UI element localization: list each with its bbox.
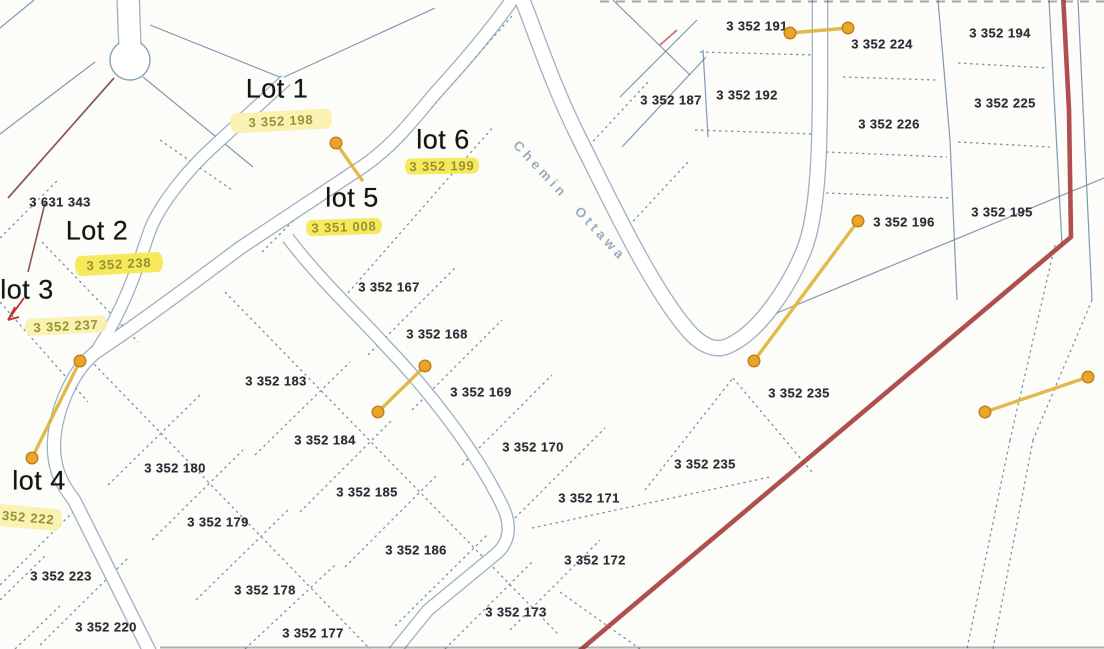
lot-label: lot 5 — [325, 183, 379, 214]
lot-label: lot 6 — [416, 125, 470, 156]
highlighted-parcel-number: 3 352 199 — [409, 158, 474, 174]
parcel-highlight: 3 352 237 — [25, 314, 108, 335]
parcel-label: 3 352 185 — [336, 485, 397, 500]
parcel-label: 3 352 225 — [974, 96, 1035, 111]
map-lines-layer — [0, 0, 1104, 649]
parcel-label: 3 352 191 — [726, 19, 787, 34]
parcel-label: 3 352 178 — [234, 583, 295, 598]
parcel-label: 3 352 170 — [502, 440, 563, 455]
parcel-label: 3 352 173 — [485, 605, 546, 620]
highlighted-parcel-number: 3 352 222 — [0, 507, 55, 528]
parcel-label: 3 352 180 — [144, 461, 205, 476]
highlighted-parcel-number: 3 352 198 — [248, 112, 314, 130]
parcel-label: 3 352 226 — [858, 117, 919, 132]
cadastral-map: 3 352 1983 352 1993 351 0083 352 2383 35… — [0, 0, 1104, 649]
parcel-label: 3 352 171 — [558, 491, 619, 506]
lot-label: Lot 1 — [246, 74, 309, 105]
parcel-label: 3 352 223 — [30, 569, 91, 584]
parcel-label: 3 352 220 — [75, 620, 136, 635]
parcel-label: 3 352 169 — [450, 385, 511, 400]
highlighted-parcel-number: 3 352 237 — [33, 316, 99, 334]
lot-label: lot 3 — [0, 275, 54, 306]
parcel-label: 3 352 224 — [851, 37, 912, 52]
parcel-label: 3 352 167 — [358, 280, 419, 295]
highlighted-parcel-number: 3 352 238 — [86, 255, 152, 273]
lot-label: lot 4 — [12, 466, 66, 497]
parcel-label: 3 352 177 — [282, 626, 343, 641]
parcel-label: 3 352 196 — [873, 215, 934, 230]
parcel-label: 3 352 186 — [385, 543, 446, 558]
parcel-label: 3 352 235 — [674, 457, 735, 472]
parcel-label: 3 352 195 — [971, 205, 1032, 220]
lot-label: Lot 2 — [66, 216, 129, 247]
parcel-label: 3 352 168 — [406, 327, 467, 342]
parcel-label: 3 352 179 — [187, 515, 248, 530]
parcel-label: 3 352 187 — [640, 93, 701, 108]
parcel-label: 3 352 192 — [716, 88, 777, 103]
parcel-label: 3 352 172 — [564, 553, 625, 568]
parcel-label: 3 352 235 — [768, 386, 829, 401]
parcel-label: 3 352 184 — [294, 433, 355, 448]
highlighted-parcel-number: 3 351 008 — [311, 218, 377, 235]
parcel-label: 3 631 343 — [29, 195, 90, 210]
parcel-highlight: 3 352 199 — [405, 157, 479, 174]
parcel-label: 3 352 183 — [245, 374, 306, 389]
parcel-label: 3 352 194 — [969, 26, 1030, 41]
parcel-highlight: 3 351 008 — [306, 218, 383, 237]
